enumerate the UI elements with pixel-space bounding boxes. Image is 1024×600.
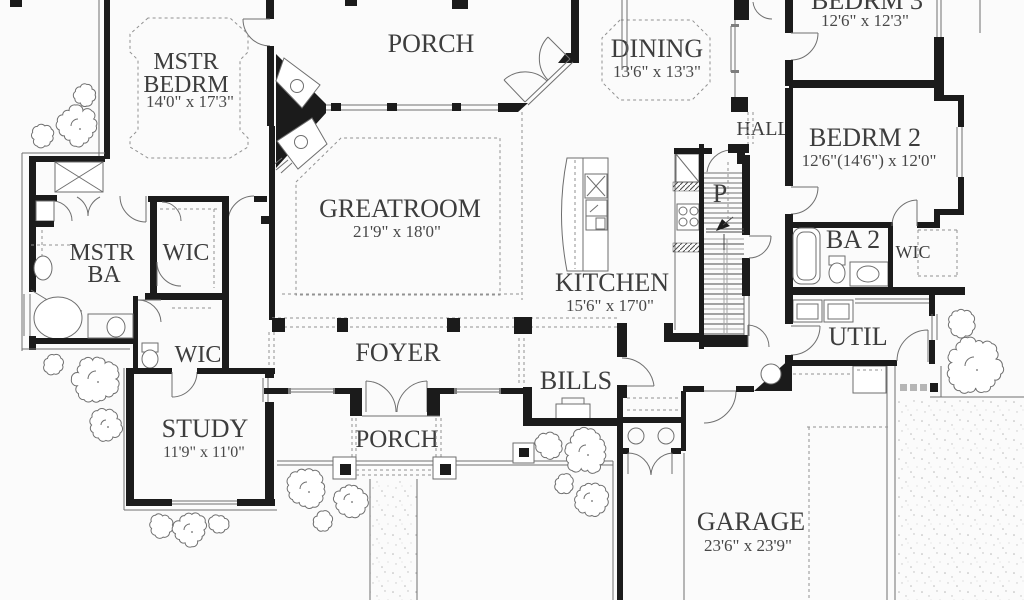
svg-text:BEDRM 2: BEDRM 2: [809, 123, 921, 152]
svg-text:WIC: WIC: [163, 240, 210, 266]
svg-text:12'6" x 12'3": 12'6" x 12'3": [821, 11, 909, 30]
svg-text:GREATROOM: GREATROOM: [319, 194, 481, 223]
svg-text:12'6"(14'6") x 12'0": 12'6"(14'6") x 12'0": [802, 151, 937, 170]
svg-text:23'6" x 23'9": 23'6" x 23'9": [704, 536, 792, 555]
svg-text:UTIL: UTIL: [828, 322, 887, 351]
svg-text:14'0" x 17'3": 14'0" x 17'3": [146, 92, 234, 111]
svg-text:DINING: DINING: [611, 34, 703, 63]
svg-text:BA 2: BA 2: [826, 225, 880, 254]
svg-text:GARAGE: GARAGE: [697, 507, 805, 536]
svg-text:15'6" x 17'0": 15'6" x 17'0": [566, 296, 654, 315]
svg-text:HALL: HALL: [736, 118, 789, 140]
svg-text:KITCHEN: KITCHEN: [555, 268, 669, 297]
svg-text:FOYER: FOYER: [355, 338, 441, 367]
svg-text:13'6" x 13'3": 13'6" x 13'3": [613, 62, 701, 81]
svg-text:21'9" x 18'0": 21'9" x 18'0": [353, 222, 441, 241]
svg-text:PORCH: PORCH: [355, 426, 438, 453]
svg-text:BA: BA: [87, 262, 121, 288]
svg-text:PORCH: PORCH: [388, 29, 475, 58]
svg-text:WIC: WIC: [175, 342, 222, 368]
svg-text:WIC: WIC: [896, 242, 931, 262]
svg-text:11'9" x 11'0": 11'9" x 11'0": [163, 444, 245, 461]
svg-text:P: P: [713, 179, 727, 208]
svg-text:BILLS: BILLS: [540, 366, 612, 395]
svg-text:STUDY: STUDY: [162, 414, 249, 443]
